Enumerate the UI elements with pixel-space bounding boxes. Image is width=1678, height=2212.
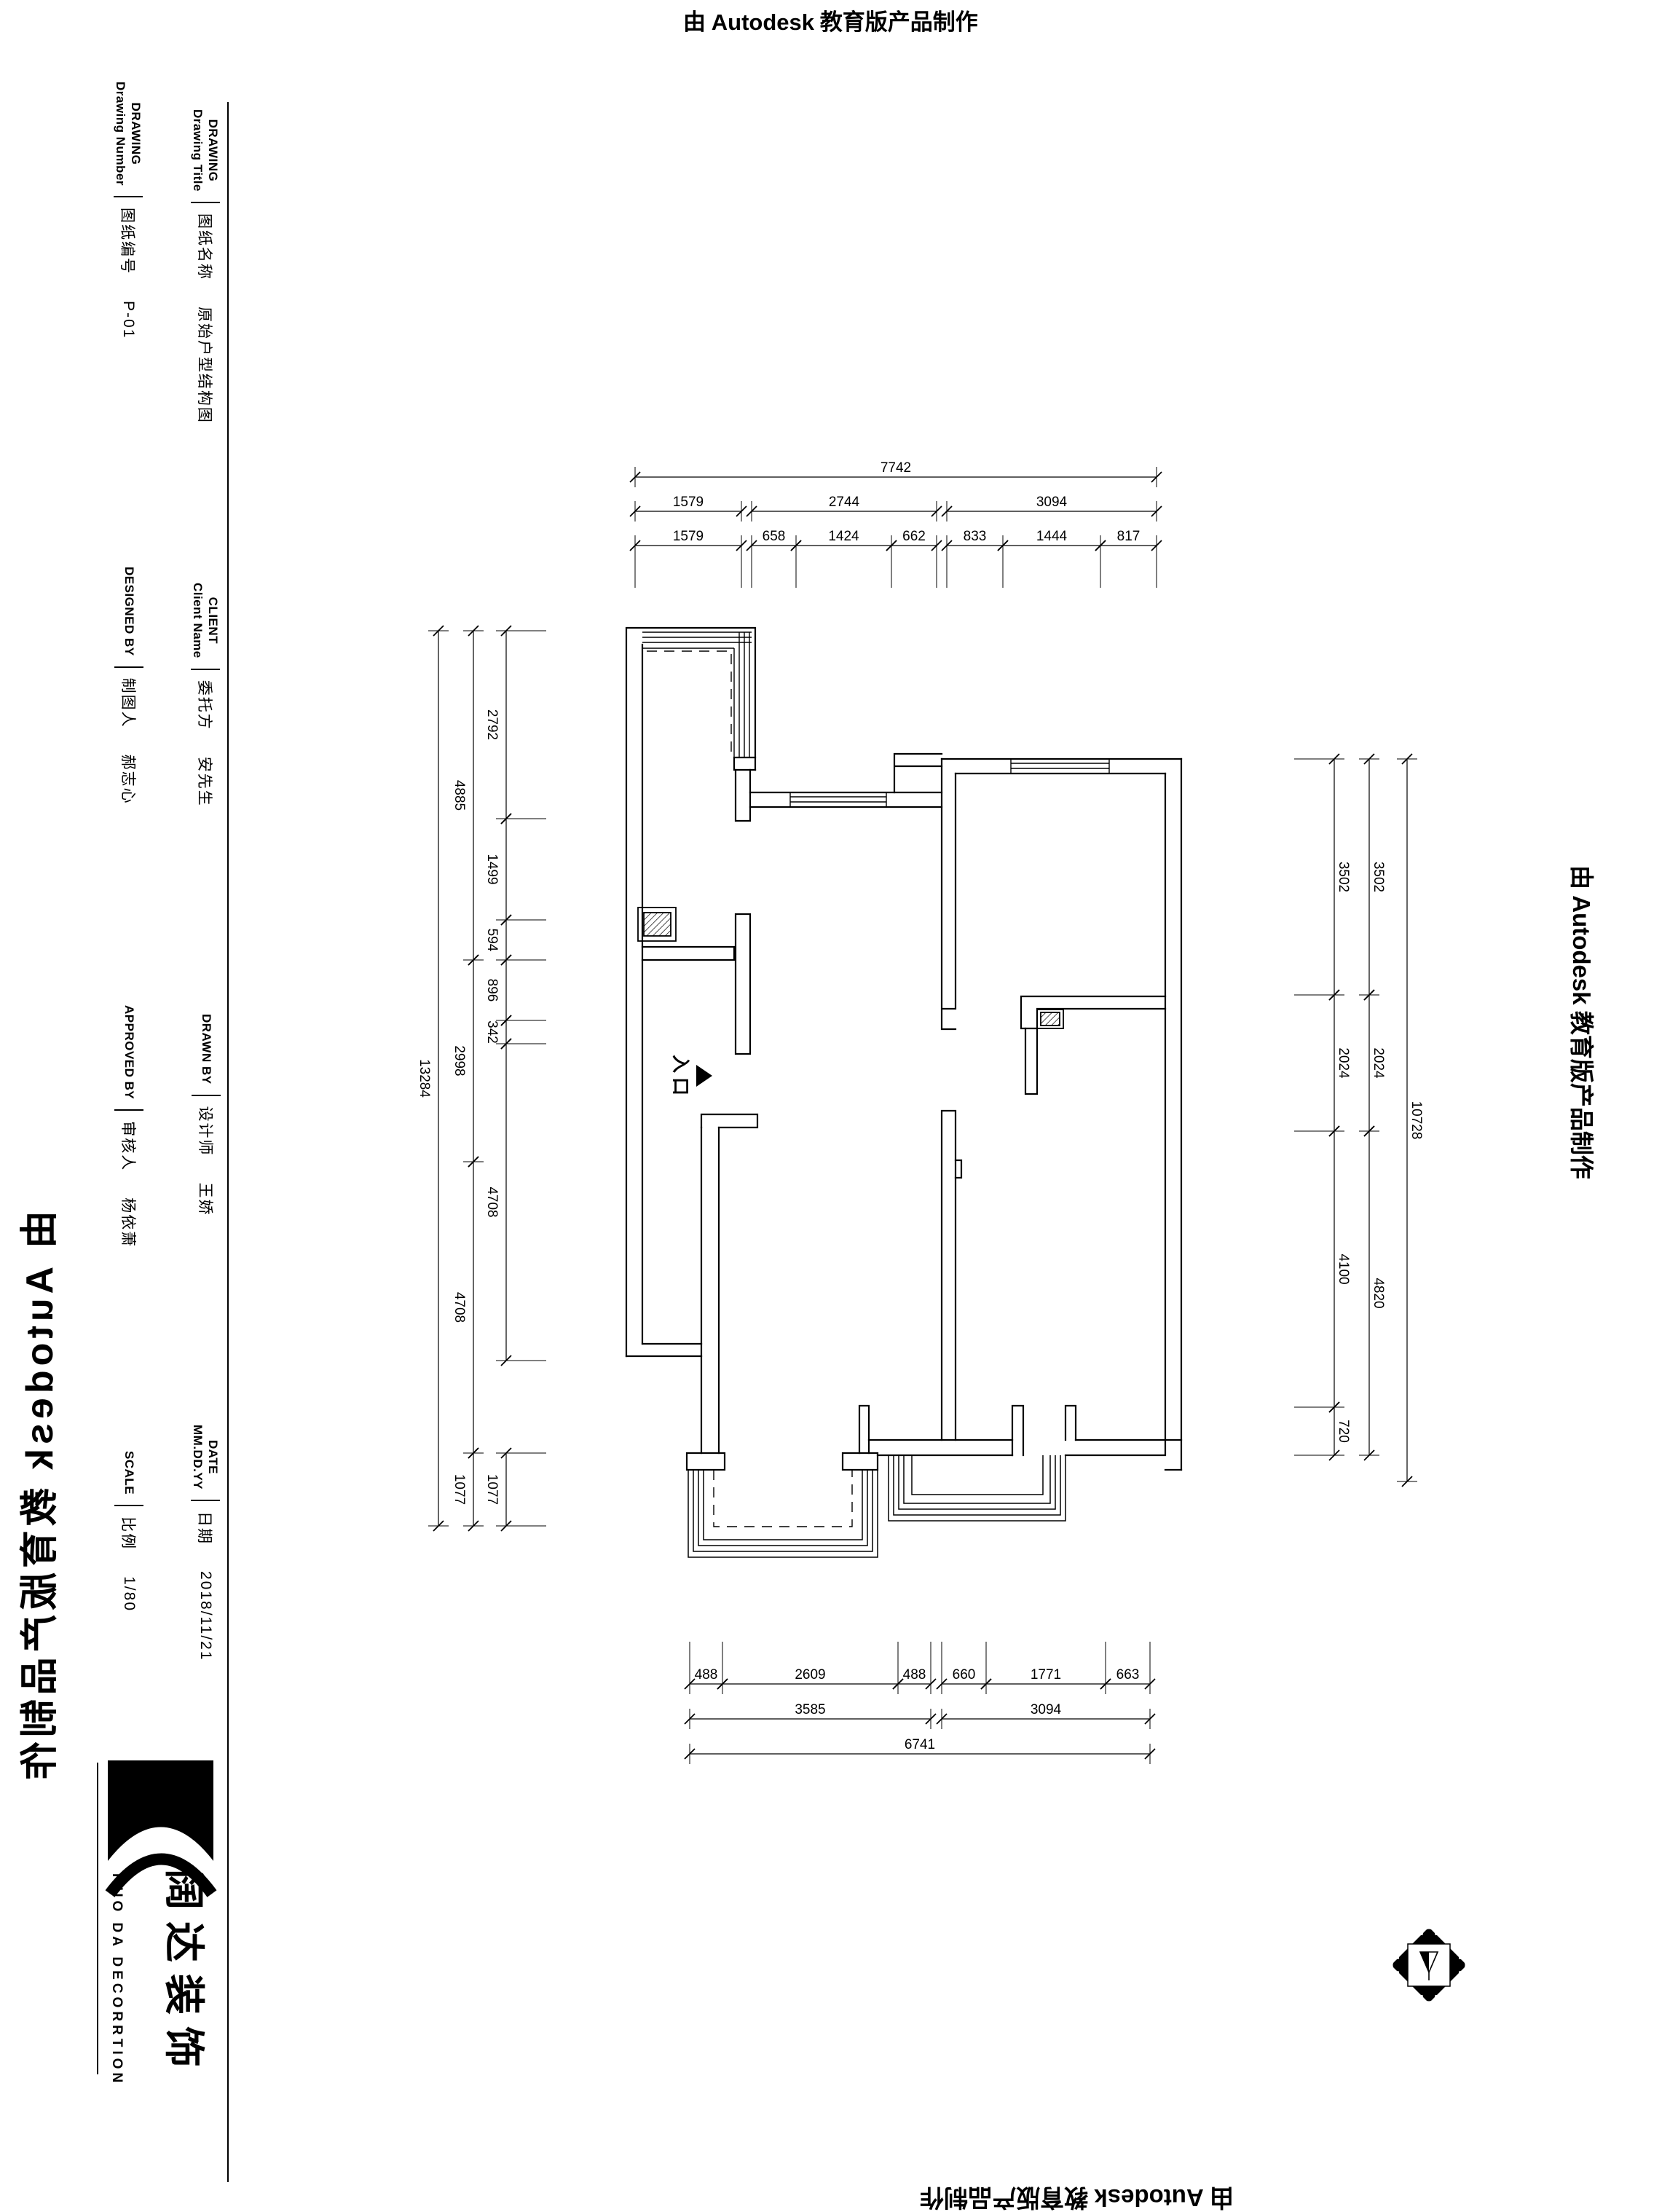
cad-sheet: 由 Autodesk 教育版产品制作 由 Autodesk 教育版产品制作 由 … — [0, 0, 1678, 2212]
logo-mark-icon — [108, 1760, 213, 1894]
dimension-text: 488 — [903, 1667, 926, 1682]
dimension-text: 896 — [484, 979, 500, 1002]
dimension-text: 1424 — [828, 529, 859, 544]
column-hatched — [638, 908, 1063, 1028]
dimension-text: 1077 — [452, 1474, 467, 1505]
dimension-text: 1499 — [484, 854, 500, 884]
dimension-text: 2792 — [484, 709, 500, 740]
dimension-text: 663 — [1116, 1667, 1140, 1682]
dimension-text: 3094 — [1031, 1702, 1062, 1717]
dimension-text: 6741 — [905, 1737, 935, 1752]
windows — [642, 632, 1109, 807]
dimension-text: 10728 — [1409, 1101, 1424, 1140]
dimension-text: 2609 — [795, 1667, 825, 1682]
dimension-text: 1579 — [673, 529, 704, 544]
dimension-text: 7742 — [881, 460, 911, 476]
north-arrow-icon — [1391, 1927, 1467, 2003]
dimension-text: 1579 — [673, 495, 704, 510]
dimension-text: 4708 — [484, 1186, 500, 1217]
entry-arrow-icon — [696, 1065, 712, 1087]
sheet-frame — [98, 102, 228, 2182]
dimension-annotations: 7742157927443094157965814246628331444817… — [417, 460, 1424, 1764]
dimension-text: 488 — [695, 1667, 718, 1682]
floor-plan-canvas: 7742157927443094157965814246628331444817… — [0, 0, 1678, 2212]
dimension-text: 3094 — [1036, 495, 1068, 510]
dimension-text: 2024 — [1336, 1047, 1351, 1079]
dimension-text: 4100 — [1336, 1253, 1351, 1284]
dimension-text: 833 — [964, 529, 987, 544]
dimension-text: 662 — [902, 529, 926, 544]
dimension-text: 4885 — [452, 780, 467, 811]
dimension-text: 720 — [1336, 1420, 1351, 1443]
dimension-text: 660 — [953, 1667, 976, 1682]
balcony-south-small — [889, 1455, 1066, 1521]
dimension-text: 1444 — [1036, 529, 1068, 544]
dimension-text: 1771 — [1031, 1667, 1061, 1682]
dimension-text: 658 — [763, 529, 786, 544]
dimension-text: 817 — [1117, 529, 1141, 544]
walls — [626, 628, 1181, 1470]
dimension-text: 342 — [484, 1020, 500, 1044]
dimension-text: 13284 — [417, 1059, 432, 1098]
dimension-text: 4820 — [1371, 1278, 1386, 1308]
dimension-text: 2744 — [829, 495, 860, 510]
dimension-text: 3502 — [1336, 862, 1351, 892]
dimension-text: 4708 — [452, 1292, 467, 1323]
dimension-text: 3585 — [795, 1702, 825, 1717]
dimension-text: 594 — [484, 929, 500, 952]
dimension-text: 1077 — [484, 1474, 500, 1505]
dimension-text: 3502 — [1371, 862, 1386, 892]
dimension-text: 2024 — [1371, 1047, 1386, 1079]
balcony-south-large — [688, 1470, 878, 1557]
dimension-text: 2998 — [452, 1045, 467, 1076]
